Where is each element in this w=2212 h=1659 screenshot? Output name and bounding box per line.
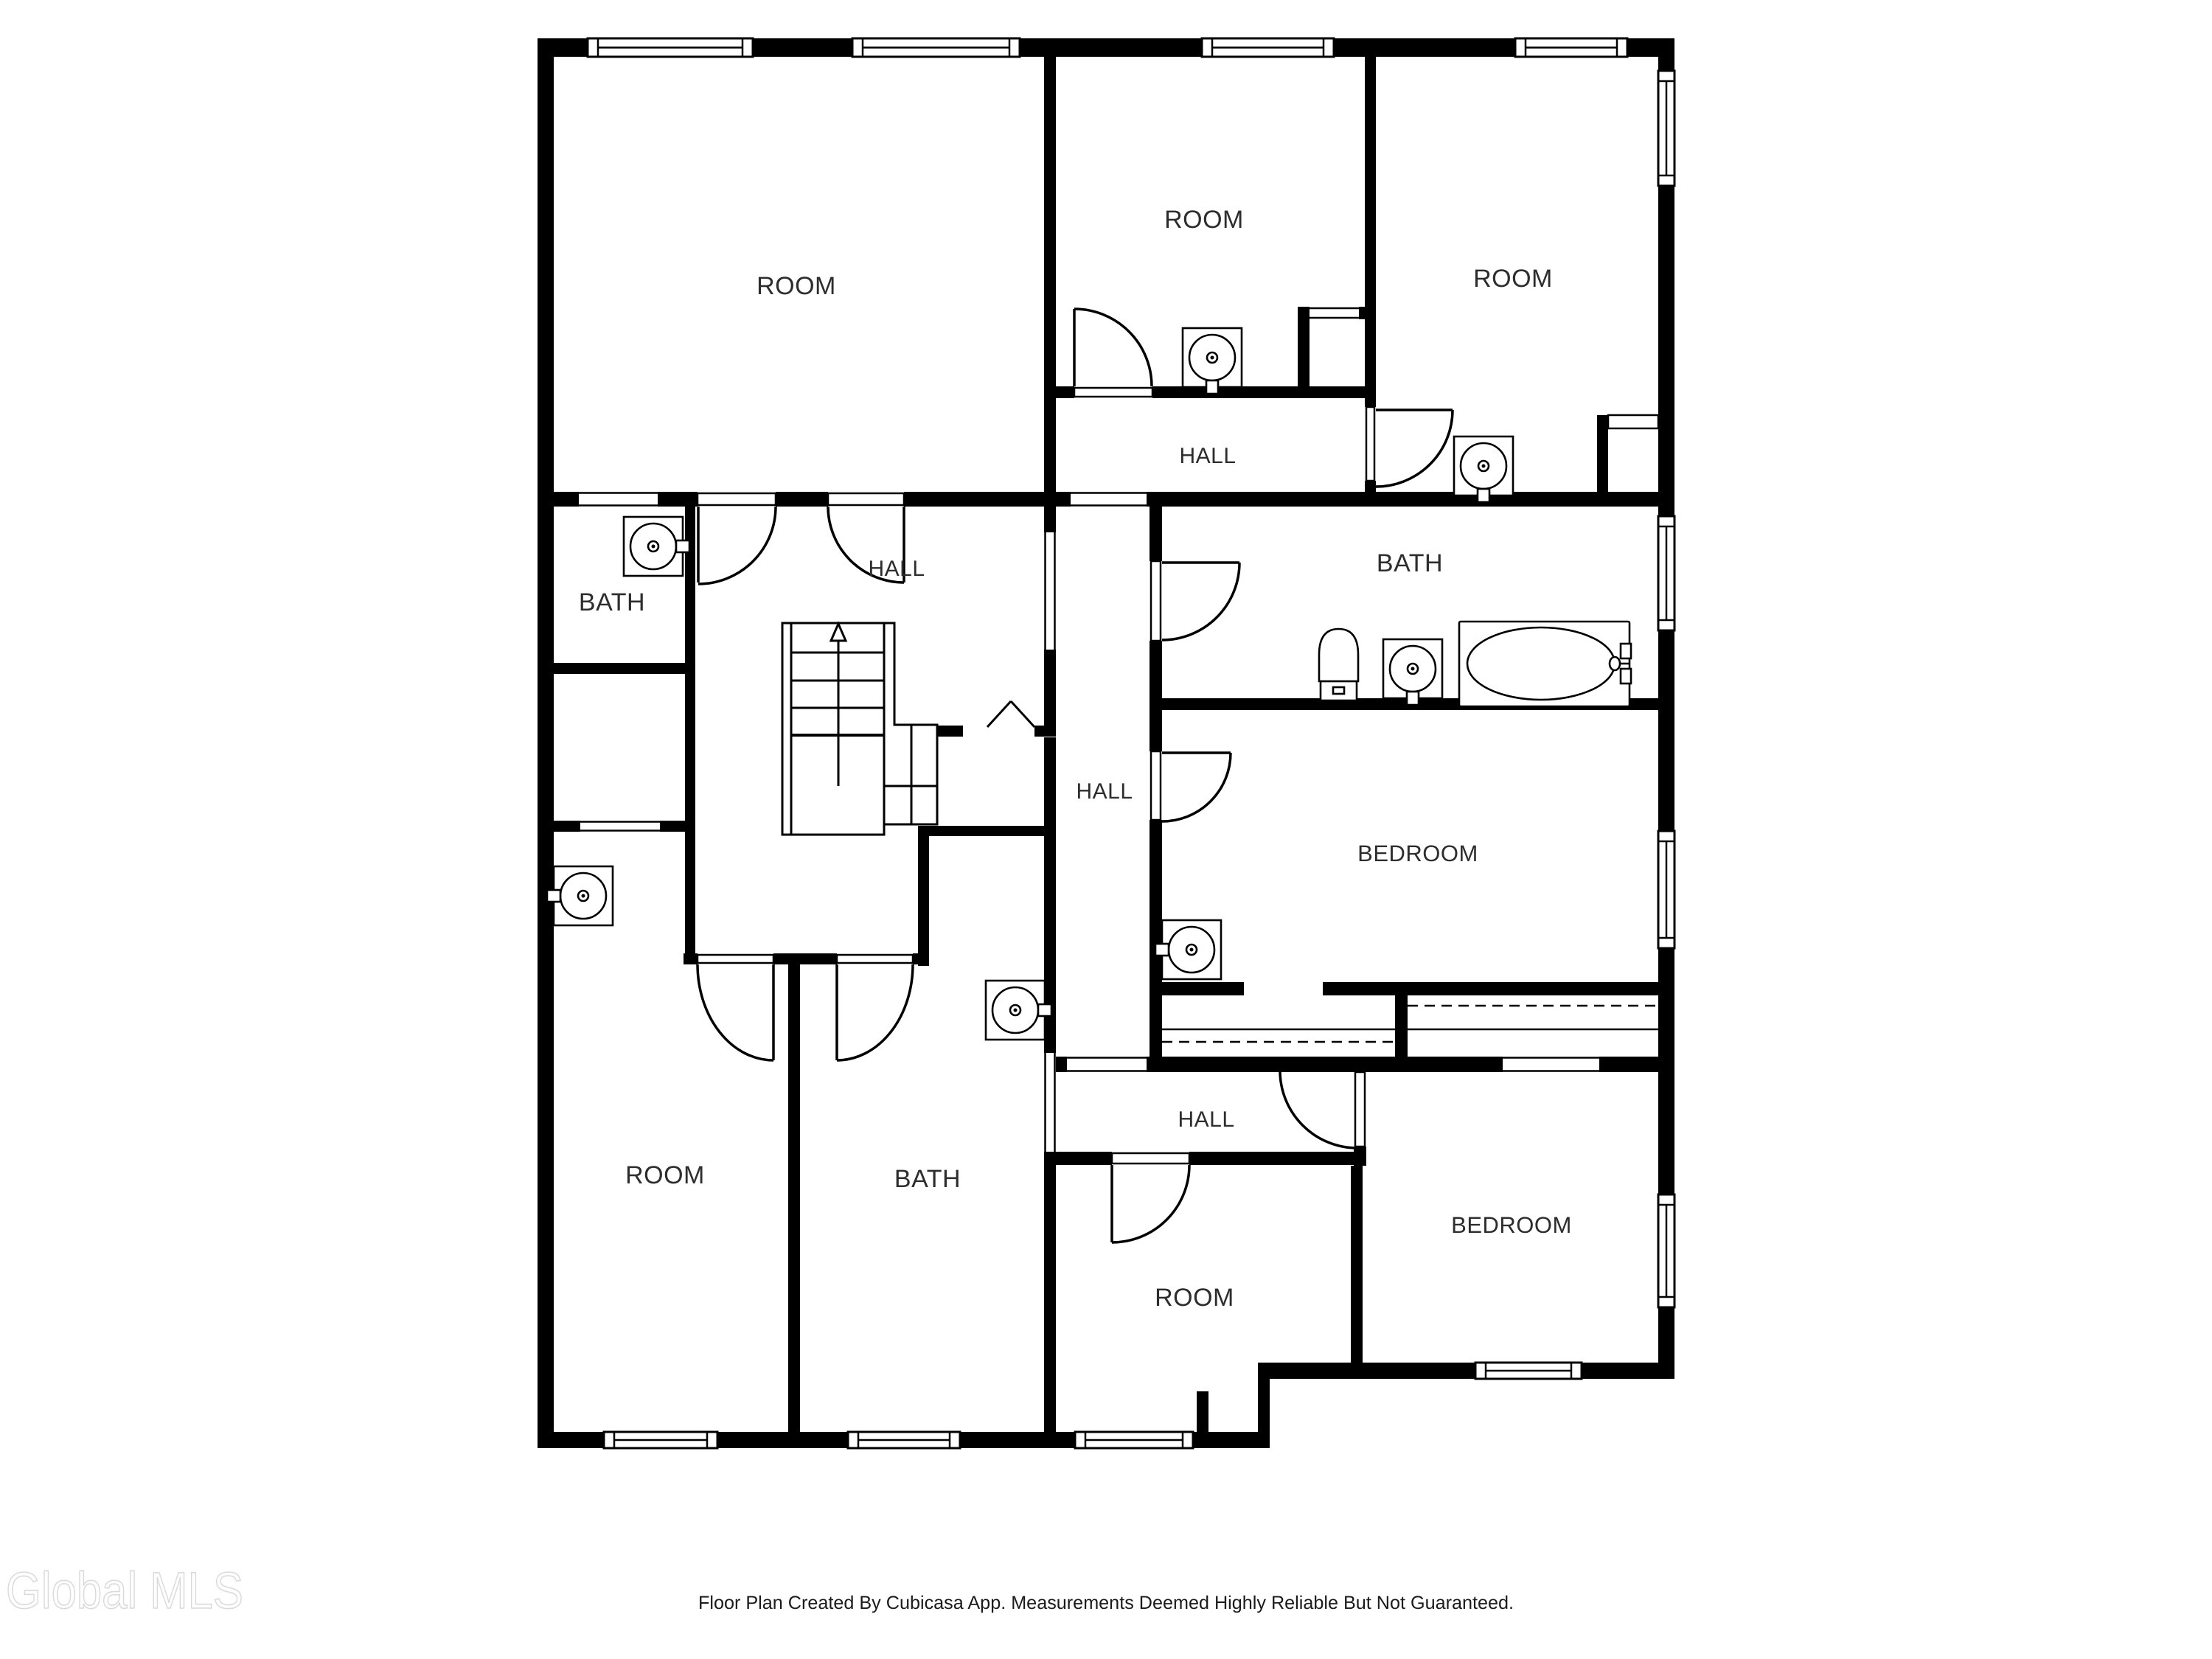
svg-text:Floor Plan Created By Cubicasa: Floor Plan Created By Cubicasa App. Meas…: [698, 1593, 1514, 1613]
svg-text:ROOM: ROOM: [757, 272, 836, 300]
svg-text:HALL: HALL: [1178, 1107, 1234, 1132]
svg-text:ROOM: ROOM: [1164, 206, 1244, 234]
svg-text:BATH: BATH: [1377, 549, 1443, 577]
svg-text:BATH: BATH: [894, 1165, 961, 1193]
svg-text:ROOM: ROOM: [625, 1161, 705, 1189]
svg-text:HALL: HALL: [1179, 444, 1236, 468]
svg-text:ROOM: ROOM: [1155, 1284, 1234, 1312]
svg-text:ROOM: ROOM: [1473, 265, 1553, 293]
svg-text:HALL: HALL: [1076, 779, 1133, 804]
svg-text:BEDROOM: BEDROOM: [1451, 1212, 1572, 1238]
svg-text:Global MLS: Global MLS: [6, 1562, 243, 1619]
svg-text:BEDROOM: BEDROOM: [1357, 841, 1478, 866]
svg-text:BATH: BATH: [579, 588, 645, 616]
svg-text:HALL: HALL: [868, 557, 925, 581]
